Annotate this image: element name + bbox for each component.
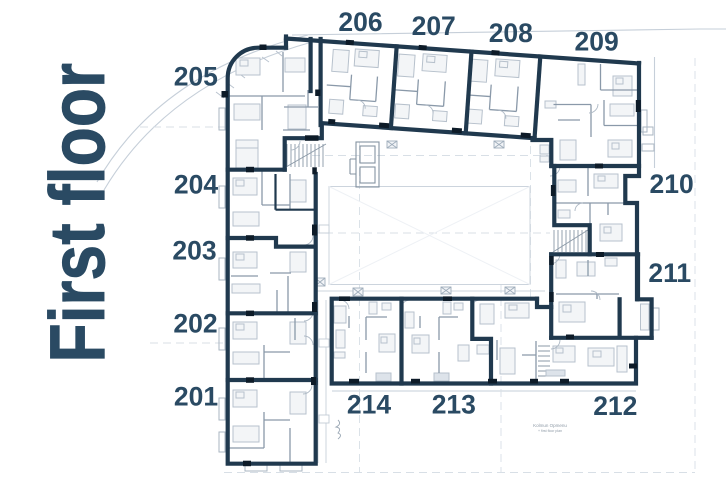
svg-text:207: 207 — [412, 11, 456, 41]
svg-text:213: 213 — [432, 390, 476, 420]
svg-text:203: 203 — [172, 235, 216, 265]
svg-text:214: 214 — [347, 390, 391, 420]
svg-text:+ first floor plan: + first floor plan — [538, 429, 562, 433]
svg-text:211: 211 — [648, 258, 691, 288]
svg-text:Kolmun Opmenu: Kolmun Opmenu — [533, 423, 567, 428]
svg-text:212: 212 — [593, 391, 637, 421]
svg-text:202: 202 — [173, 309, 217, 339]
svg-text:210: 210 — [649, 169, 693, 199]
svg-text:204: 204 — [174, 169, 218, 199]
svg-text:208: 208 — [489, 18, 533, 48]
svg-text:205: 205 — [174, 62, 218, 92]
svg-text:206: 206 — [338, 7, 382, 37]
svg-text:209: 209 — [574, 26, 618, 56]
svg-text:201: 201 — [174, 382, 218, 412]
svg-text:First floor: First floor — [34, 63, 121, 363]
